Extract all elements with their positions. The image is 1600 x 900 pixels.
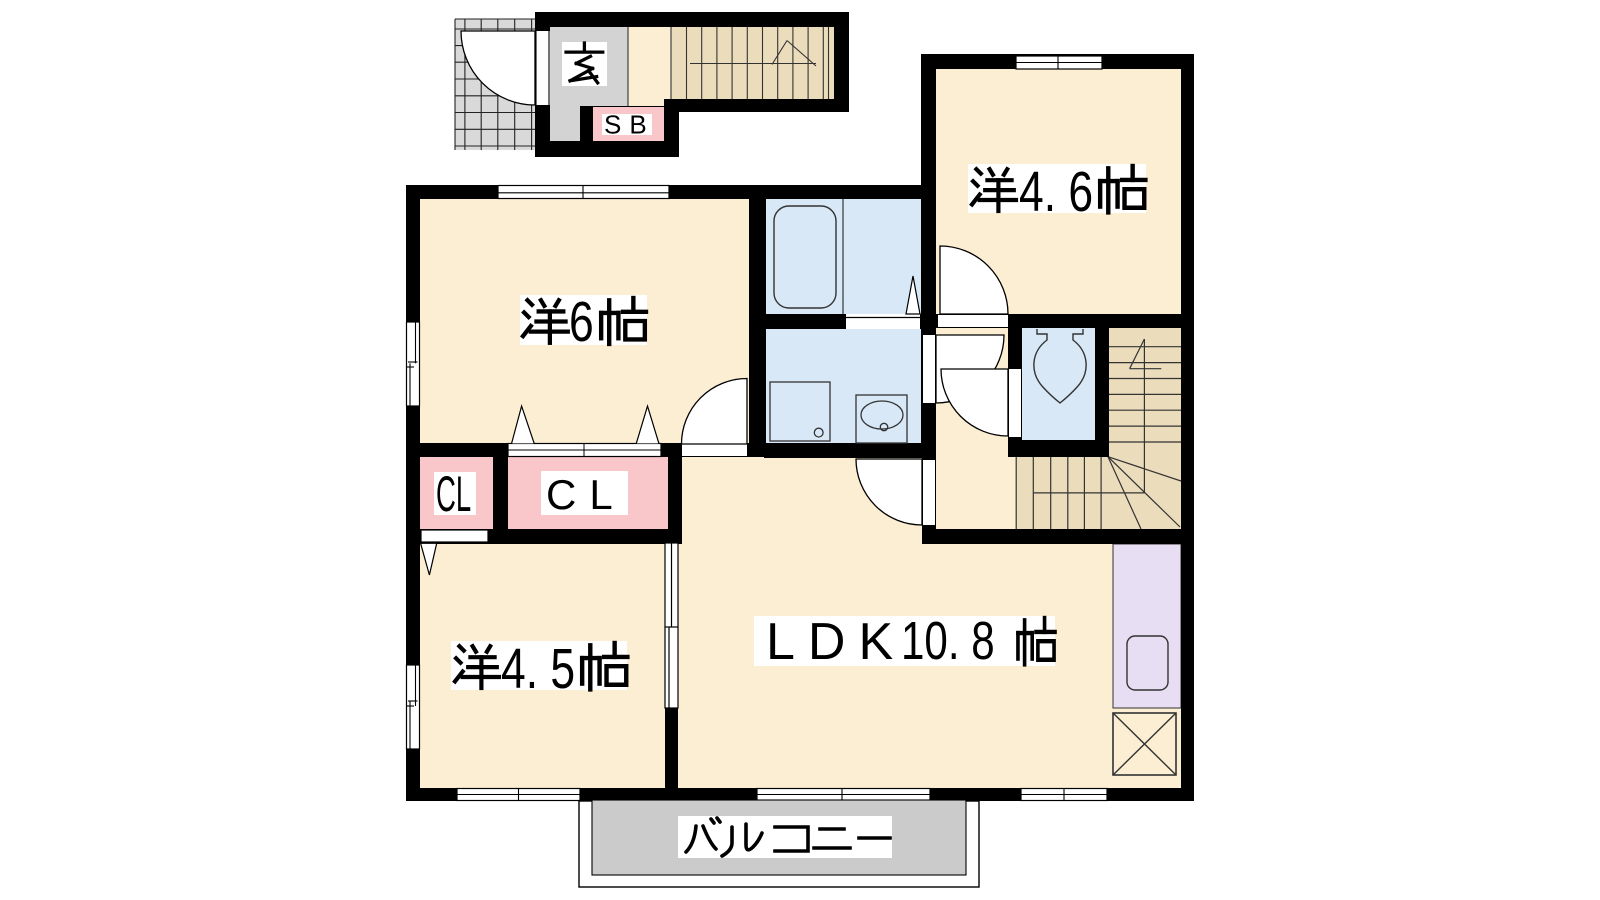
svg-text:SB: SB bbox=[604, 110, 655, 140]
svg-text:10. 8: 10. 8 bbox=[901, 611, 995, 671]
svg-text:CL: CL bbox=[436, 465, 471, 522]
svg-text:CL: CL bbox=[546, 471, 626, 518]
svg-text:6: 6 bbox=[569, 290, 594, 354]
svg-text:LDK: LDK bbox=[766, 613, 906, 671]
svg-text:4. 5: 4. 5 bbox=[501, 637, 575, 701]
svg-text:4. 6: 4. 6 bbox=[1019, 160, 1093, 224]
